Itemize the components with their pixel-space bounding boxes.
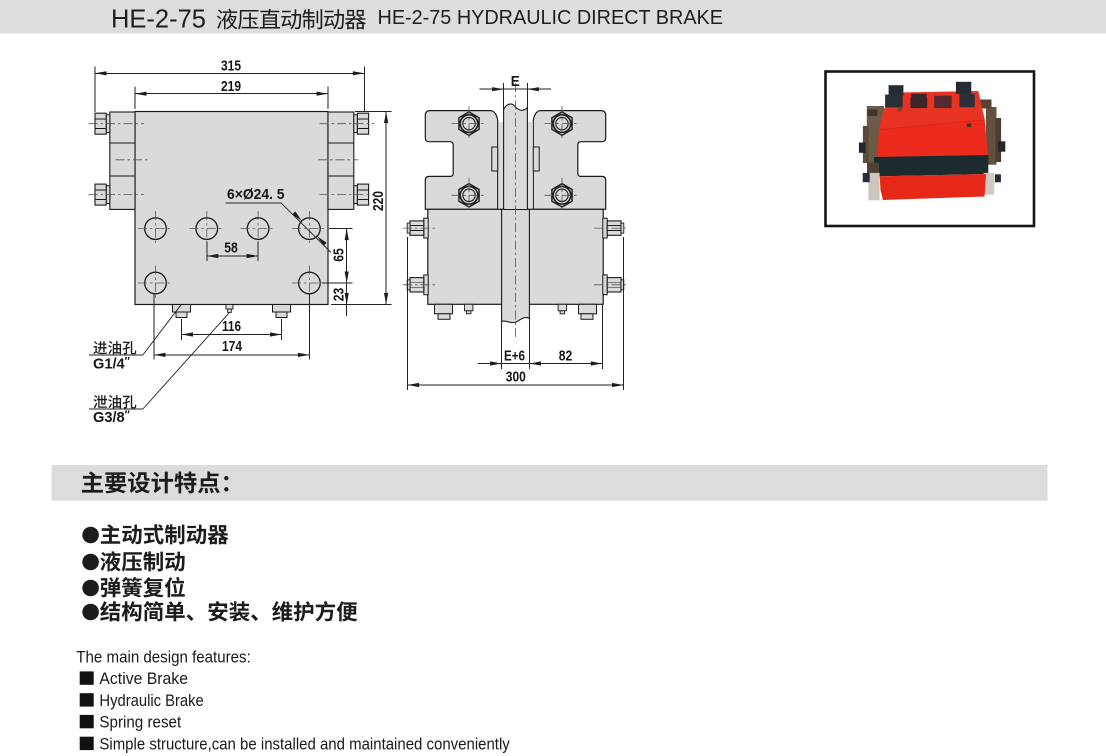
svg-text:315: 315: [221, 58, 241, 75]
svg-text:82: 82: [559, 347, 573, 364]
svg-text:Simple structure,can be instal: Simple structure,can be installed and ma…: [99, 734, 510, 753]
svg-text:219: 219: [221, 78, 241, 95]
svg-text:The main design features:: The main design features:: [76, 648, 251, 667]
svg-text:174: 174: [222, 338, 243, 355]
svg-text:300: 300: [506, 369, 526, 386]
svg-text:G1/4″: G1/4″: [93, 356, 131, 373]
svg-text:G3/8″: G3/8″: [93, 409, 131, 426]
svg-text:Active Brake: Active Brake: [99, 669, 188, 688]
svg-text:Hydraulic Brake: Hydraulic Brake: [99, 691, 203, 710]
svg-text:Spring reset: Spring reset: [99, 713, 181, 732]
svg-text:220: 220: [370, 191, 387, 211]
svg-text:6×Ø24. 5: 6×Ø24. 5: [227, 186, 285, 203]
svg-text:HE-2-75 HYDRAULIC DIRECT BRA: HE-2-75 HYDRAULIC DIRECT BRAKE: [378, 7, 724, 29]
svg-text:58: 58: [224, 240, 238, 257]
svg-text:E+6: E+6: [504, 347, 525, 364]
svg-text:116: 116: [222, 318, 241, 335]
svg-text:E: E: [511, 73, 520, 90]
svg-text:23: 23: [331, 288, 348, 302]
svg-text:HE-2-75: HE-2-75: [111, 5, 206, 33]
svg-text:65: 65: [331, 248, 348, 262]
